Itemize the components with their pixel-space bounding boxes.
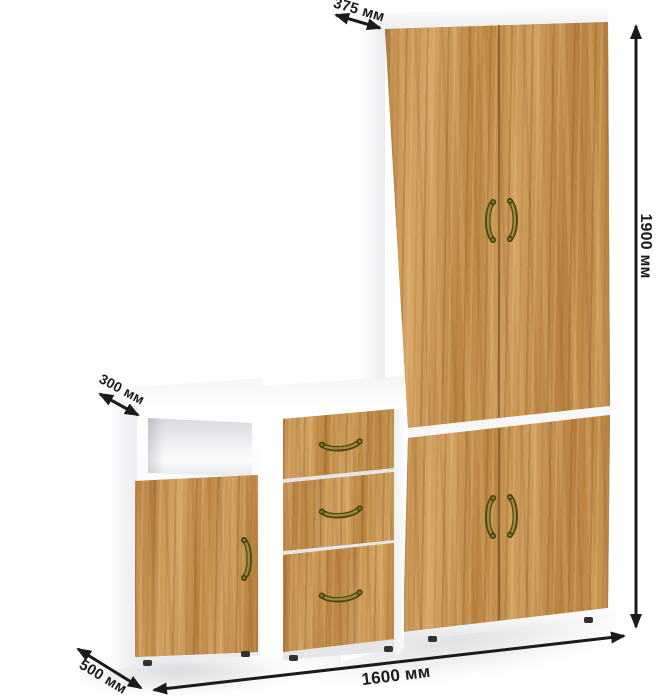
door-handle xyxy=(506,493,520,539)
drawer-unit-foot xyxy=(289,655,298,661)
door-handle xyxy=(506,197,520,243)
left-cabinet-foot xyxy=(143,660,152,666)
furniture-dimension-diagram: 375 мм 1900 мм 300 мм 500 мм 1600 мм xyxy=(0,0,656,700)
wardrobe-foot xyxy=(428,636,437,642)
left-cabinet-side-panel xyxy=(96,390,137,676)
dimension-label-total-height: 1900 мм xyxy=(636,213,654,278)
drawer-unit-foot xyxy=(384,646,393,652)
door-handle xyxy=(240,536,254,582)
door-handle xyxy=(483,494,497,540)
wardrobe-foot xyxy=(584,617,593,623)
left-cabinet-open-shelf xyxy=(148,418,252,477)
wardrobe-lower-door-gap xyxy=(498,428,500,620)
door-handle xyxy=(483,198,497,244)
left-cabinet-foot xyxy=(241,651,250,657)
wardrobe-upper-door-gap xyxy=(498,25,500,418)
drawer-unit-side-panel xyxy=(394,408,404,659)
